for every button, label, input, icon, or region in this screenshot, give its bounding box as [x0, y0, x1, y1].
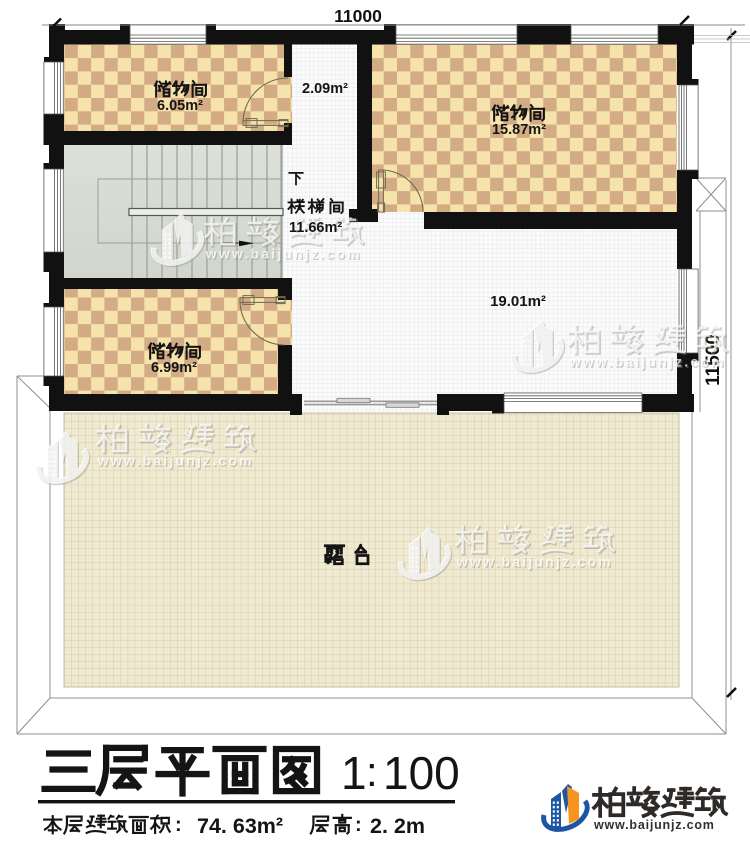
- svg-text:15.87m²: 15.87m²: [492, 122, 546, 138]
- svg-text:www.baijunjz.com: www.baijunjz.com: [456, 554, 613, 570]
- svg-text::: :: [175, 814, 182, 836]
- svg-text:100: 100: [383, 747, 460, 799]
- svg-text:www.baijunjz.com: www.baijunjz.com: [569, 354, 726, 370]
- svg-text:1: 1: [341, 747, 367, 799]
- svg-text:11.66m²: 11.66m²: [289, 220, 342, 236]
- svg-text:11000: 11000: [334, 6, 382, 26]
- svg-text:6.99m²: 6.99m²: [151, 360, 197, 376]
- svg-text:www.baijunjz.com: www.baijunjz.com: [593, 818, 715, 832]
- svg-text:2. 2m: 2. 2m: [370, 814, 425, 838]
- svg-text:www.baijunjz.com: www.baijunjz.com: [205, 246, 362, 262]
- svg-text:74. 63m²: 74. 63m²: [197, 814, 283, 838]
- svg-text:6.05m²: 6.05m²: [157, 98, 203, 114]
- svg-text::: :: [355, 814, 362, 836]
- svg-text:19.01m²: 19.01m²: [490, 293, 546, 310]
- svg-text:2.09m²: 2.09m²: [302, 81, 348, 97]
- svg-text:www.baijunjz.com: www.baijunjz.com: [97, 453, 254, 469]
- svg-text::: :: [366, 748, 378, 795]
